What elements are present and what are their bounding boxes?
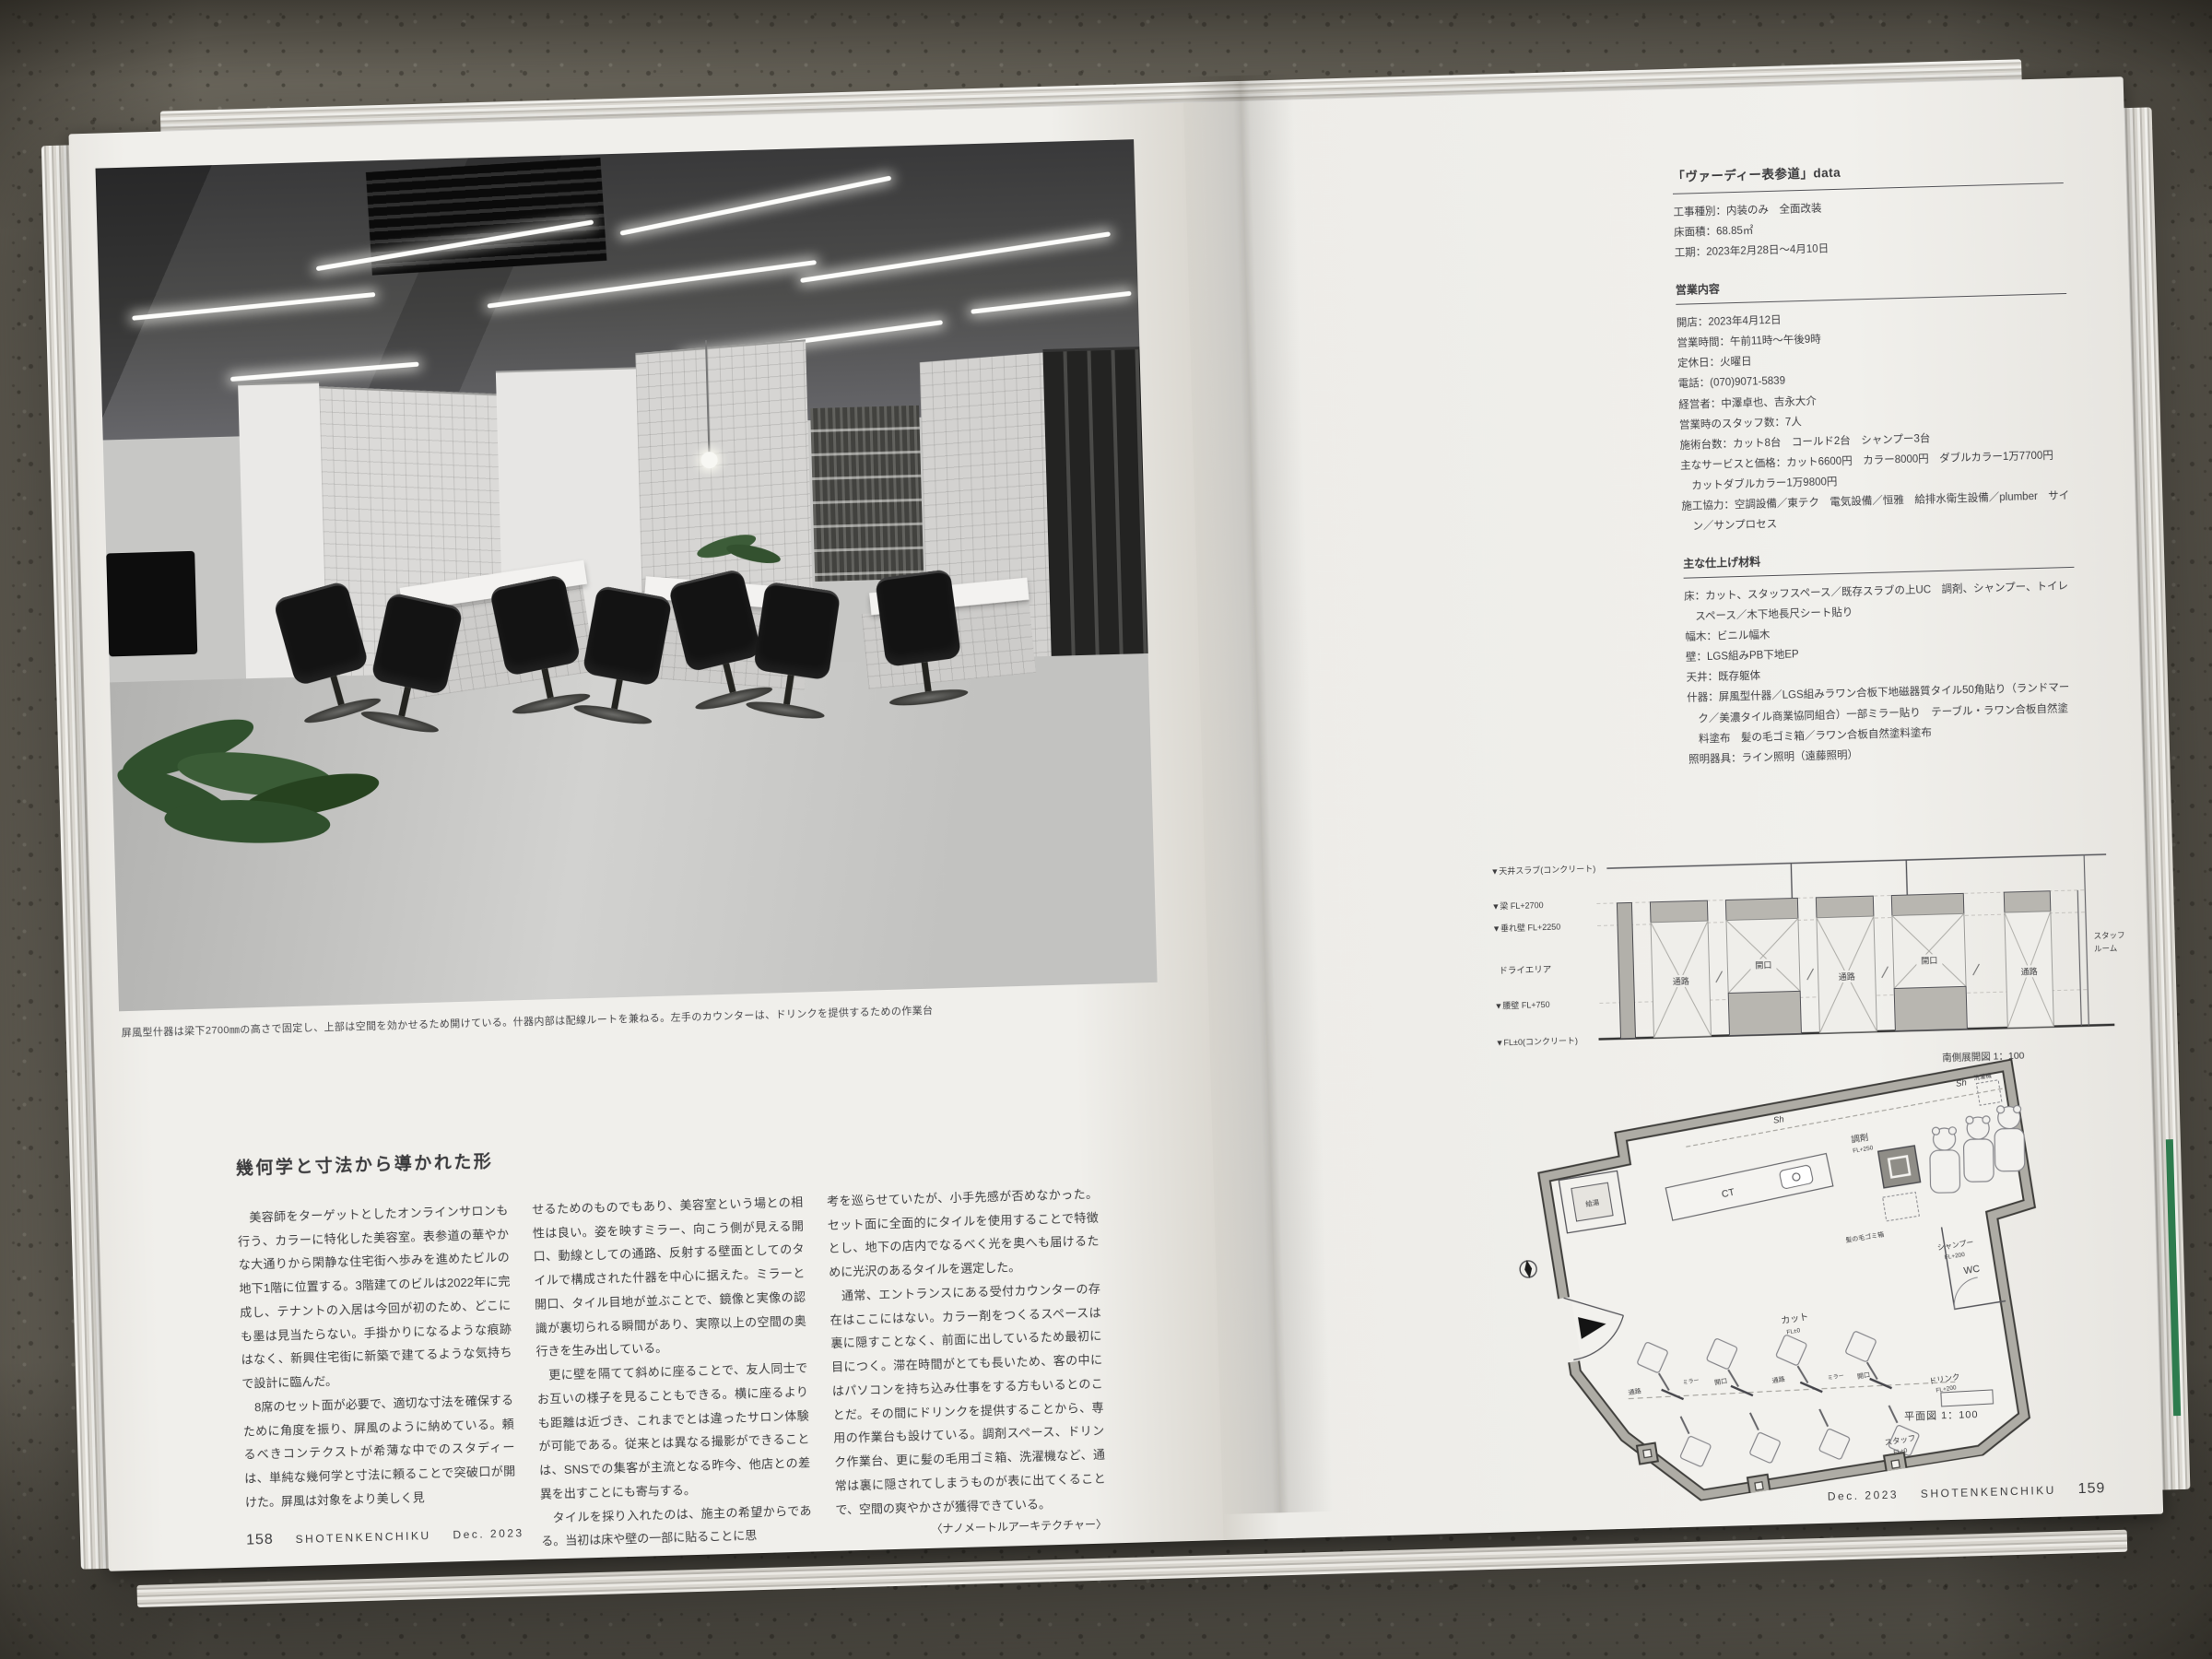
shelf-label: Sh [1772, 1114, 1784, 1126]
plan-caption: 平面図 1：100 [1904, 1406, 1979, 1423]
tile-feature-square [1878, 1146, 1921, 1188]
north-arrow-icon [1519, 1259, 1538, 1280]
magazine-name: SHOTENKENCHIKU [1921, 1484, 2056, 1500]
right-page-footer: Dec. 2023 SHOTENKENCHIKU 159 [1811, 1480, 2106, 1505]
project-data-panel: 「ヴァーディー表参道」data 工事種別：内装のみ 全面改装 床面積：68.85… [1672, 156, 2079, 770]
magazine-name: SHOTENKENCHIKU [295, 1529, 430, 1546]
dry-area-label: ドライエリア [1499, 965, 1551, 977]
level-label: ▼FL±0(コンクリート) [1495, 1036, 1578, 1047]
shelf-label: Sh [1955, 1077, 1967, 1089]
display-monitor [106, 551, 197, 657]
article-column-3: 考を巡らせていたが、小手先感が否めなかった。セット面に全面的にタイルを使用するこ… [827, 1182, 1108, 1546]
svg-text:開口: 開口 [1921, 956, 1937, 965]
bookshelf [810, 406, 924, 582]
page-number: 158 [246, 1532, 274, 1548]
paragraph: タイルを採り入れたのは、施主の希望からである。当初は床や壁の一部に貼ることに思 [540, 1499, 812, 1554]
article-body: 美容師をターゲットとしたオンラインサロンも行う、カラーに特化した美容室。表参道の… [237, 1181, 1154, 1561]
ceiling-vent-grille [366, 158, 607, 276]
staff-room-label: ルーム [2094, 944, 2118, 954]
green-insert-page-edge [2166, 1139, 2181, 1416]
paragraph: せるためのものでもあり、美容室という場との相性は良い。姿を映すミラー、向こう側が… [532, 1191, 807, 1364]
article-column-2: せるためのものでもあり、美容室という場との相性は良い。姿を映すミラー、向こう側が… [532, 1191, 813, 1554]
staff-room-label: スタッフ [2093, 930, 2124, 940]
svg-text:通路: 通路 [1839, 971, 1855, 982]
section-heading-materials: 主な仕上げ材料 [1683, 545, 2075, 579]
paragraph: 更に壁を隔てて斜めに座ることで、友人同士でお互いの様子を見ることもできる。横に座… [536, 1357, 811, 1507]
open-magazine-spread: 屏風型什器は梁下2700㎜の高さで固定し、上部は空間を効かせるため開けている。什… [41, 50, 2193, 1610]
level-label: ▼梁 FL+2700 [1491, 900, 1543, 912]
salon-chair [873, 569, 969, 709]
svg-text:通路: 通路 [1673, 976, 1689, 986]
svg-text:通路: 通路 [2020, 966, 2037, 976]
level-label: ▼天井スラブ(コンクリート) [1490, 863, 1595, 876]
issue-date: Dec. 2023 [1828, 1488, 1900, 1503]
page-number: 159 [2077, 1480, 2105, 1497]
paragraph: 通常、エントランスにある受付カウンターの存在はここにはない。カラー剤をつくるスペ… [829, 1277, 1107, 1522]
salon-interior-photo [96, 139, 1158, 1011]
article-heading: 幾何学と寸法から導かれた形 [235, 1147, 493, 1180]
svg-text:開口: 開口 [1755, 960, 1771, 970]
paragraph: 考を巡らせていたが、小手先感が否めなかった。セット面に全面的にタイルを使用するこ… [827, 1182, 1100, 1285]
drink-counter [1941, 1390, 1994, 1406]
paragraph: 8席のセット面が必要で、適切な寸法を確保するために角度を振り、屏風のように納めて… [242, 1388, 516, 1514]
article-column-1: 美容師をターゲットとしたオンラインサロンも行う、カラーに特化した美容室。表参道の… [237, 1199, 518, 1562]
left-page: 屏風型什器は梁下2700㎜の高さで固定し、上部は空間を効かせるため開けている。什… [68, 103, 1223, 1571]
right-page: 「ヴァーディー表参道」data 工事種別：内装のみ 全面改装 床面積：68.85… [1183, 76, 2163, 1540]
section-heading-business: 営業内容 [1676, 271, 2067, 305]
paragraph: 美容師をターゲットとしたオンラインサロンも行う、カラーに特化した美容室。表参道の… [237, 1199, 513, 1396]
issue-date: Dec. 2023 [453, 1526, 524, 1541]
data-row: 什器：屏風型什器／LGS組みラワン合板下地磁器質タイル50角貼り（ランドマーク／… [1687, 677, 2079, 749]
concrete-floor-background: 屏風型什器は梁下2700㎜の高さで固定し、上部は空間を効かせるため開けている。什… [0, 0, 2212, 1659]
level-label: ▼垂れ壁 FL+2250 [1492, 922, 1560, 934]
window-wall [1042, 347, 1148, 675]
level-label: ▼腰壁 FL+750 [1494, 999, 1549, 1011]
data-panel-title: 「ヴァーディー表参道」data [1672, 156, 2064, 194]
